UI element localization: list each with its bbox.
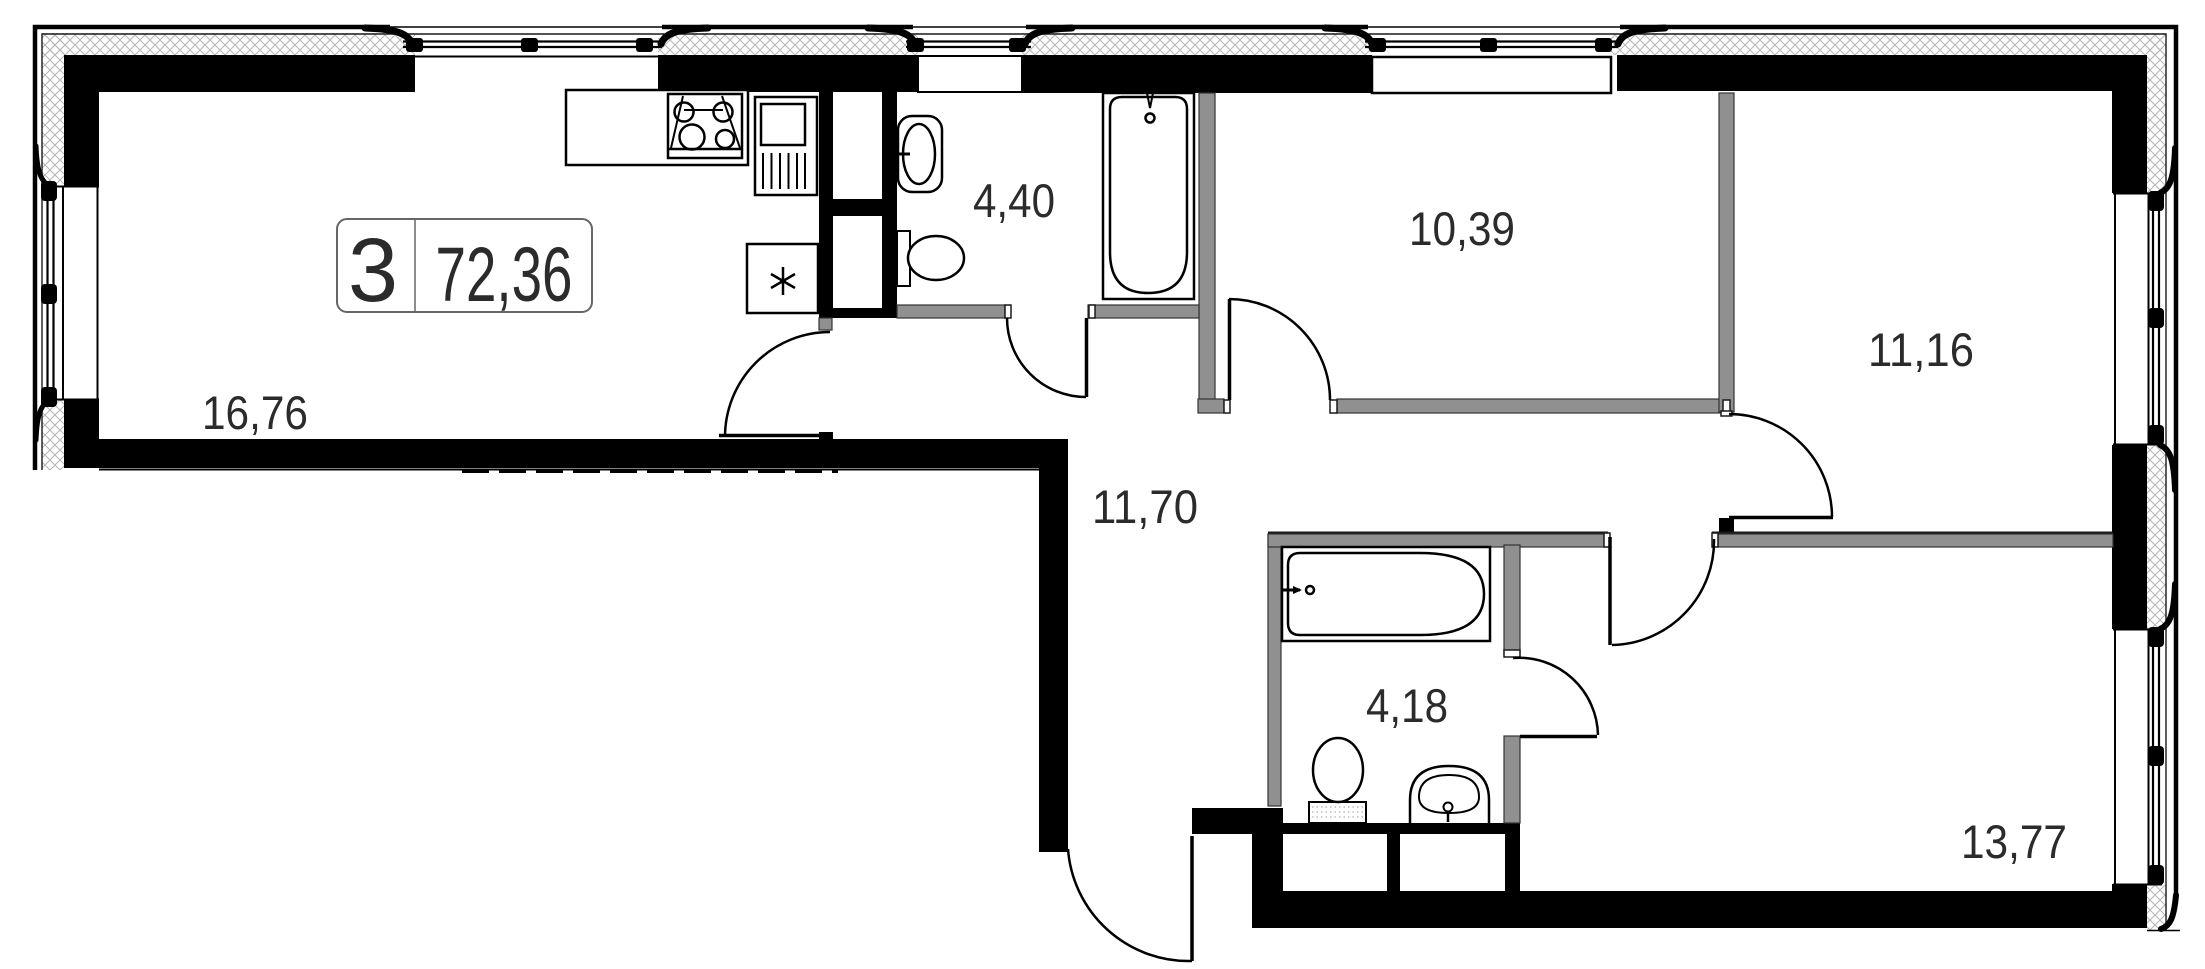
svg-text:10,39: 10,39 bbox=[1409, 202, 1515, 255]
svg-text:13,77: 13,77 bbox=[1961, 815, 2067, 868]
svg-text:11,70: 11,70 bbox=[1092, 480, 1198, 533]
svg-text:4,18: 4,18 bbox=[1366, 679, 1448, 732]
svg-text:16,76: 16,76 bbox=[202, 386, 308, 439]
svg-text:72,36: 72,36 bbox=[436, 232, 573, 318]
svg-text:3: 3 bbox=[348, 221, 398, 321]
svg-text:11,16: 11,16 bbox=[1868, 323, 1974, 376]
svg-text:4,40: 4,40 bbox=[973, 174, 1055, 227]
